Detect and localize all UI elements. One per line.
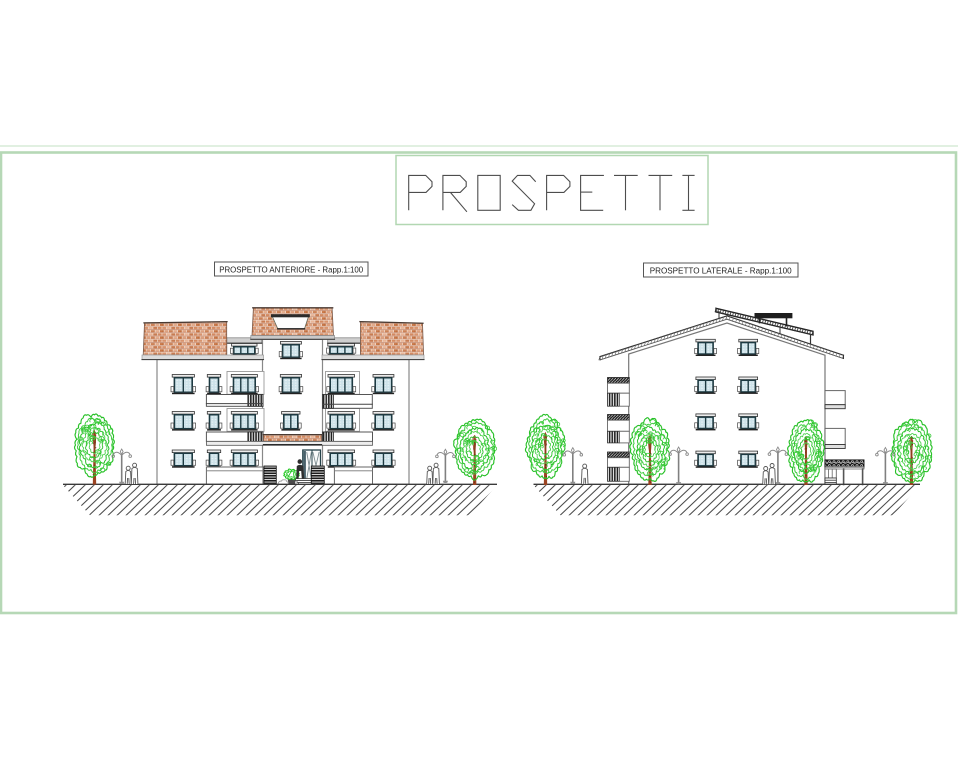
svg-text:PROSPETTO LATERALE - Rapp.1:10: PROSPETTO LATERALE - Rapp.1:100 — [650, 266, 792, 276]
svg-text:PROSPETTO ANTERIORE - Rapp.1:1: PROSPETTO ANTERIORE - Rapp.1:100 — [219, 265, 363, 275]
